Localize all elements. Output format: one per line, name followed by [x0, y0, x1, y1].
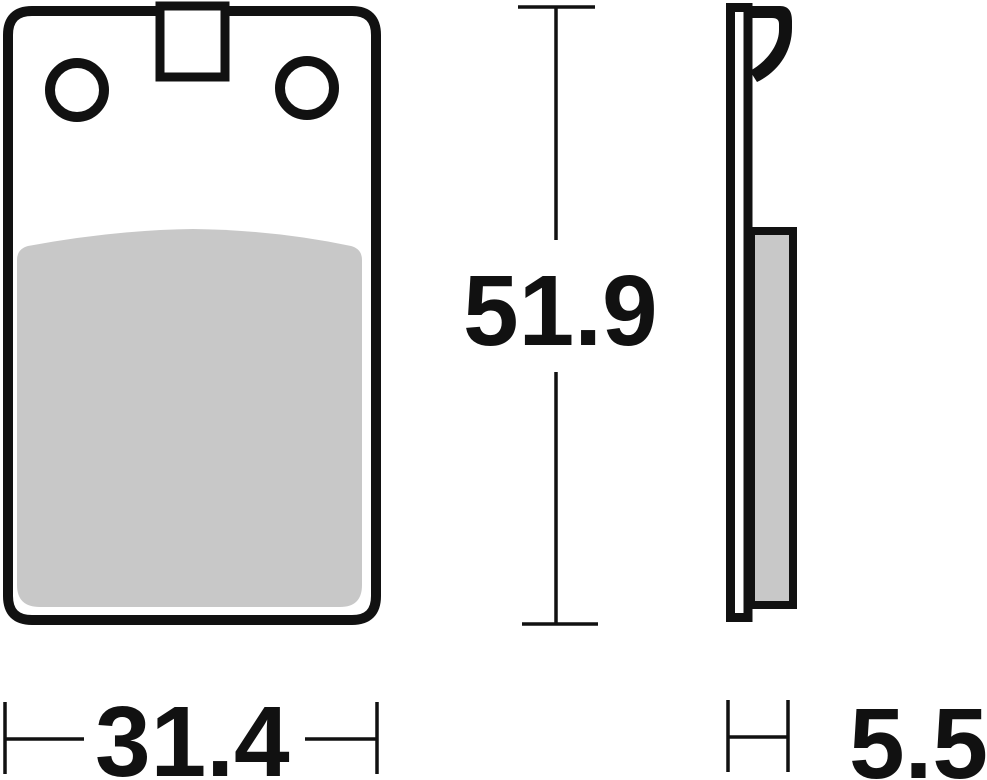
friction-material-front [17, 229, 362, 607]
side-view [731, 6, 794, 618]
mounting-tab [160, 6, 225, 77]
height-dimension-label: 51.9 [463, 261, 658, 361]
mounting-hole-left [50, 63, 104, 117]
front-view [8, 6, 376, 620]
mounting-hole-right [280, 61, 334, 115]
friction-material-side [751, 231, 793, 605]
brake-pad-technical-drawing: 31.4 51.9 5.5 [0, 0, 987, 780]
retaining-hook [750, 6, 792, 82]
width-dimension-label: 31.4 [95, 692, 290, 780]
backing-plate-side [731, 8, 749, 618]
thickness-dimension-label: 5.5 [849, 694, 987, 780]
thickness-dimension-line [728, 700, 788, 772]
drawing-figure [0, 0, 987, 780]
